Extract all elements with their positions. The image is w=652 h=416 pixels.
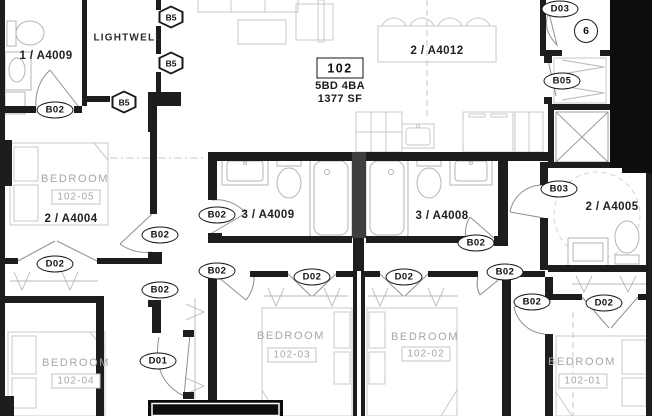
keynote-circle-6: 6 [574,19,598,43]
door-tag-d01: D01 [140,353,177,370]
callout-bath-1-a4009: 1 / A4009 [19,50,72,62]
unit-area-label: 1377 SF [318,93,362,105]
bedroom-number-102-03: 102-03 [267,348,316,363]
bedroom-label-102-01: BEDROOM [548,356,616,368]
window-tag-b5-3-text: B5 [114,93,135,112]
window-tag-b5-2-text: B5 [161,54,182,73]
unit-number: 102 [327,61,352,75]
door-tag-d02-2: D02 [294,269,331,286]
bedroom-label-102-05: BEDROOM [41,173,109,185]
callout-bedroom-2-a4004: 2 / A4004 [44,213,97,225]
door-tag-d02-3: D02 [386,269,423,286]
door-tag-b02-4: B02 [199,263,236,280]
callout-bath-2-a4005: 2 / A4005 [585,201,638,213]
bedroom-number-102-01: 102-01 [558,374,607,389]
room-label-lightwell: LIGHTWELL [93,33,162,44]
bedroom-label-102-03: BEDROOM [257,330,325,342]
double-wall-gap [357,271,361,416]
door-tag-b05: B05 [544,73,581,90]
door-tag-b02-8: B02 [514,294,551,311]
door-tag-d03: D03 [542,1,579,18]
callout-kitchen-2-a4012: 2 / A4012 [410,45,463,57]
floor-plan: LIGHTWELL 102 5BD 4BA 1377 SF 1 / A4009 … [0,0,652,416]
door-tag-b02-1: B02 [37,102,74,119]
unit-bedbath-label: 5BD 4BA [315,80,365,92]
bedroom-label-102-04: BEDROOM [42,357,110,369]
keynote-6-text: 6 [583,25,589,37]
door-tag-b03: B03 [541,181,578,198]
door-tag-b02-3: B02 [142,227,179,244]
bedroom-number-102-05: 102-05 [51,190,100,205]
callout-bath-3-a4009: 3 / A4009 [241,209,294,221]
door-tag-b02-2: B02 [199,207,236,224]
door-tag-d02-4: D02 [586,295,623,312]
door-tag-d02-1: D02 [37,256,74,273]
bedroom-label-102-02: BEDROOM [391,331,459,343]
callout-bath-3-a4008: 3 / A4008 [415,210,468,222]
window-tag-b5-1-text: B5 [161,8,182,27]
door-tag-b02-5: B02 [142,282,179,299]
bedroom-number-102-04: 102-04 [51,374,100,389]
door-tag-b02-6: B02 [458,235,495,252]
bedroom-number-102-02: 102-02 [401,347,450,362]
door-tag-b02-7: B02 [487,264,524,281]
unit-number-box: 102 [317,58,364,79]
